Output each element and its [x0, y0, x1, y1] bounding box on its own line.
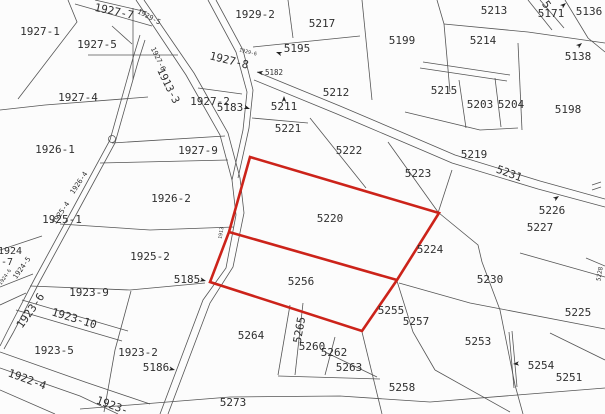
parcel-boundary-line: [405, 112, 518, 130]
parcel-boundary-line: [423, 62, 510, 75]
parcel-label-1924: 1924: [0, 246, 22, 257]
parcel-label-5213: 5213: [481, 4, 508, 17]
parcel-label-5220: 5220: [317, 212, 344, 225]
parcel-label-5224: 5224: [417, 243, 444, 256]
parcel-label-1927-7: 1927-7: [93, 1, 135, 22]
parcel-label-5183: 5183: [217, 101, 244, 114]
parcel-label-1927-5: 1927-5: [77, 38, 117, 51]
parcel-boundary-line: [459, 80, 466, 128]
parcel-label-5231: 5231: [494, 163, 523, 184]
parcel-label-5253: 5253: [465, 335, 492, 348]
pointer-marker: [275, 50, 282, 56]
parcel-label-5203: 5203: [467, 98, 494, 111]
parcel-label-5226: 5226: [539, 204, 566, 217]
parcel-label-5255: 5255: [378, 304, 405, 317]
parcel-boundary-line: [18, 0, 77, 99]
parcel-label-5211: 5211: [271, 100, 298, 113]
parcel-label-1925-1: 1925-1: [42, 213, 82, 226]
parcel-label-5198: 5198: [555, 103, 582, 116]
parcel-label-5195: 5195: [284, 42, 311, 55]
parcel-label-1926-2: 1926-2: [151, 192, 191, 205]
parcel-boundary-line: [362, 332, 382, 414]
parcel-label-5262: 5262: [321, 346, 348, 359]
parcel-boundary-line: [435, 370, 510, 412]
parcel-label-1927-4: 1927-4: [58, 91, 98, 104]
parcel-label-5273: 5273: [220, 396, 247, 409]
parcel-boundary-line: [60, 224, 234, 230]
pointer-marker: [513, 361, 519, 366]
parcel-boundary-line: [520, 253, 605, 277]
parcel-label-5217: 5217: [309, 17, 336, 30]
parcel-label-5228: 5228: [595, 266, 604, 282]
parcel-label-1924-6: 1924-6: [0, 268, 13, 286]
parcel-boundary-line: [216, 0, 253, 178]
cadastral-map-view: 1927-11927-51927-41927-71929-51927-61913…: [0, 0, 605, 414]
parcel-label-5182: 5182: [265, 68, 283, 77]
parcel-boundary-line: [0, 390, 55, 414]
parcel-boundary-line: [512, 331, 517, 387]
parcel-label-5136: 5136: [576, 5, 603, 18]
parcel-label-1929-2: 1929-2: [235, 8, 275, 21]
parcel-label-5223: 5223: [405, 167, 432, 180]
parcel-label-1923-2: 1923-2: [118, 346, 158, 359]
pointer-marker: [169, 366, 176, 372]
parcel-label-5264: 5264: [238, 329, 265, 342]
parcel-label-5212: 5212: [323, 86, 350, 99]
parcel-boundary-line: [80, 388, 605, 409]
parcel-label-5214: 5214: [470, 34, 497, 47]
parcel-boundary-line: [362, 0, 372, 100]
parcel-label-5227: 5227: [527, 221, 554, 234]
parcel-label-5185: 5185: [174, 273, 201, 286]
parcel-label-1924-5: 1924-5: [11, 255, 32, 280]
parcel-label-5186: 5186: [143, 361, 170, 374]
parcel-boundary-line: [528, 32, 605, 43]
parcel-label-1923-9: 1923-9: [69, 286, 109, 299]
parcel-label-5222: 5222: [336, 144, 363, 157]
parcel-label-5230: 5230: [477, 273, 504, 286]
parcel-label-1913-3: 1913-3: [154, 66, 181, 105]
parcel-boundary-line: [420, 68, 507, 81]
parcel-label-1922-4: 1922-4: [6, 367, 48, 393]
parcel-label-5254: 5254: [528, 359, 555, 372]
parcel-boundary-line: [550, 333, 605, 360]
parcel-boundary-line: [444, 24, 528, 32]
highlighted-parcel-divider[interactable]: [229, 232, 397, 280]
pointer-marker: [576, 41, 583, 48]
parcel-label-1923-: 1923-: [94, 394, 130, 414]
parcel-label--7: -7: [1, 257, 13, 268]
map-canvas[interactable]: 1927-11927-51927-41927-71929-51927-61913…: [0, 0, 605, 414]
parcel-boundary-line: [518, 43, 522, 130]
parcel-boundary-line: [100, 160, 228, 163]
parcel-boundary-line: [278, 376, 380, 379]
road-node-circle-marker: [109, 136, 116, 143]
parcel-label-5225: 5225: [565, 306, 592, 319]
parcel-boundary-line: [586, 258, 605, 266]
pointer-marker: [244, 105, 251, 111]
parcel-label-1913: 1913: [217, 227, 225, 240]
parcel-boundary-line: [254, 80, 605, 207]
parcel-label-5263: 5263: [336, 361, 363, 374]
parcel-boundary-line: [438, 170, 452, 213]
parcel-boundary-line: [437, 0, 450, 92]
parcel-label-1926-1: 1926-1: [35, 143, 75, 156]
parcel-label-5221: 5221: [275, 122, 302, 135]
parcel-label-1923-10: 1923-10: [50, 306, 98, 332]
parcel-label-1925-2: 1925-2: [130, 250, 170, 263]
parcel-boundary-line: [439, 213, 482, 262]
parcel-label-5138: 5138: [565, 50, 592, 63]
parcel-label-1927-1: 1927-1: [20, 25, 60, 38]
parcel-label-5258: 5258: [389, 381, 416, 394]
parcel-label-1929-5: 1929-5: [136, 8, 162, 27]
parcel-label-5215: 5215: [431, 84, 458, 97]
pointer-marker: [200, 277, 207, 283]
parcel-label-5251: 5251: [556, 371, 583, 384]
parcel-label-5199: 5199: [389, 34, 416, 47]
parcel-boundary-line: [592, 182, 601, 185]
parcel-boundary-line: [592, 187, 601, 190]
parcel-label-5204: 5204: [498, 98, 525, 111]
parcel-boundary-line: [112, 136, 225, 143]
parcel-label-1923-5: 1923-5: [34, 344, 74, 357]
parcel-label-5256: 5256: [288, 275, 315, 288]
parcel-boundary-line: [278, 305, 290, 375]
pointer-marker: [553, 194, 560, 201]
parcel-boundary-line: [288, 0, 293, 38]
parcel-label-5257: 5257: [403, 315, 430, 328]
parcel-label-1927-9: 1927-9: [178, 144, 218, 157]
parcel-label-5219: 5219: [461, 148, 488, 161]
